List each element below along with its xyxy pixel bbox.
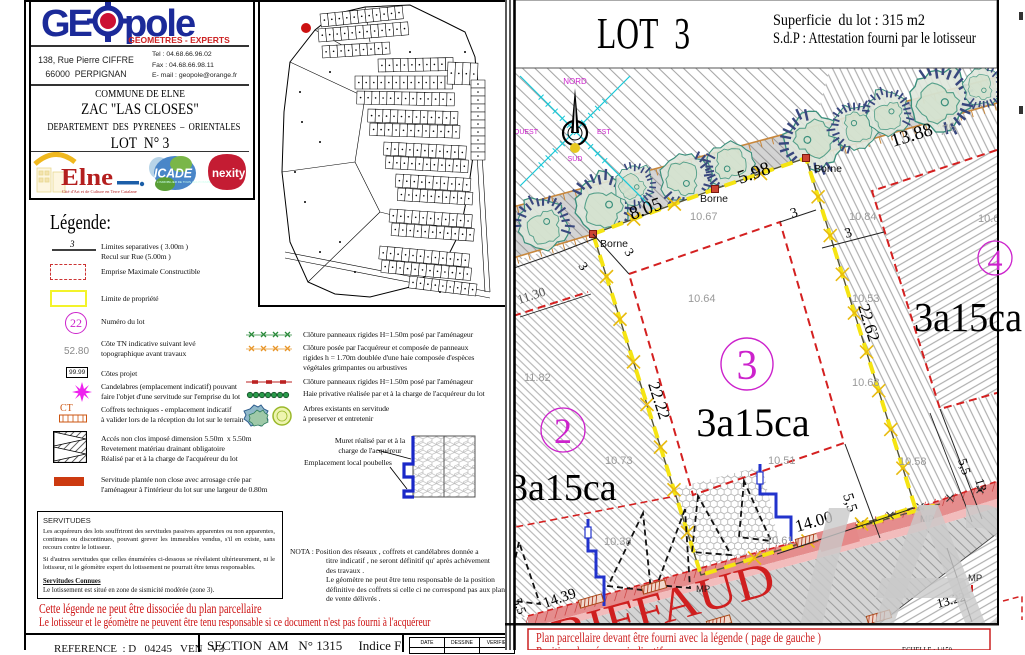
svg-text:Borne: Borne bbox=[814, 163, 842, 175]
svg-text:ICADE: ICADE bbox=[154, 166, 192, 181]
svg-text:LOT 3: LOT 3 bbox=[597, 9, 690, 58]
svg-text:GE: GE bbox=[41, 3, 92, 45]
svg-text:Cité d'Art et de Culture en Te: Cité d'Art et de Culture en Terre Catala… bbox=[62, 189, 137, 194]
svg-text:S.d.P : Attestation fourni par: S.d.P : Attestation fourni par le lotiss… bbox=[773, 30, 977, 47]
svg-text:10.51: 10.51 bbox=[768, 455, 796, 467]
svg-text:nexity: nexity bbox=[212, 168, 246, 180]
svg-text:10.6: 10.6 bbox=[978, 213, 999, 225]
svg-text:Position des réseaux indicatif: Position des réseaux indicatifs bbox=[536, 644, 667, 650]
svg-text:10.68: 10.68 bbox=[852, 377, 880, 389]
svg-text:10.67: 10.67 bbox=[690, 211, 718, 223]
svg-text:EST: EST bbox=[597, 129, 611, 136]
svg-text:10.58: 10.58 bbox=[899, 456, 927, 468]
svg-text:3a15ca: 3a15ca bbox=[914, 294, 1022, 340]
svg-text:MP: MP bbox=[696, 584, 710, 595]
svg-text:NORD: NORD bbox=[563, 77, 587, 86]
svg-text:10.73: 10.73 bbox=[605, 455, 633, 467]
svg-text:Borne: Borne bbox=[600, 238, 628, 250]
svg-text:L'IMMOBILIER DE TOUS LES POSSI: L'IMMOBILIER DE TOUS LES POSSIBLES bbox=[157, 180, 215, 184]
svg-text:ECHELLE : 1/150: ECHELLE : 1/150 bbox=[902, 645, 952, 650]
svg-text:11.82: 11.82 bbox=[524, 372, 551, 384]
svg-text:SUD: SUD bbox=[568, 156, 583, 163]
svg-text:Plan parcellaire devant être f: Plan parcellaire devant être fourni avec… bbox=[536, 630, 821, 645]
svg-text:Borne: Borne bbox=[700, 193, 728, 205]
svg-text:3: 3 bbox=[69, 239, 75, 249]
svg-text:3a15ca: 3a15ca bbox=[696, 400, 810, 445]
svg-text:Elne: Elne bbox=[61, 165, 113, 191]
svg-text:4: 4 bbox=[988, 244, 1003, 277]
svg-text:10.53: 10.53 bbox=[852, 293, 880, 305]
svg-text:10.84: 10.84 bbox=[849, 211, 877, 223]
svg-text:3: 3 bbox=[737, 343, 758, 389]
svg-text:10.64: 10.64 bbox=[688, 293, 716, 305]
svg-text:10.38: 10.38 bbox=[604, 536, 632, 548]
svg-text:MP: MP bbox=[968, 573, 982, 584]
svg-text:2: 2 bbox=[554, 411, 572, 451]
svg-text:OUEST: OUEST bbox=[514, 129, 539, 136]
svg-text:Superficie du lot : 315 m2: Superficie du lot : 315 m2 bbox=[773, 12, 925, 29]
svg-text:10.61: 10.61 bbox=[766, 535, 794, 547]
svg-text:3a15ca: 3a15ca bbox=[509, 467, 617, 509]
